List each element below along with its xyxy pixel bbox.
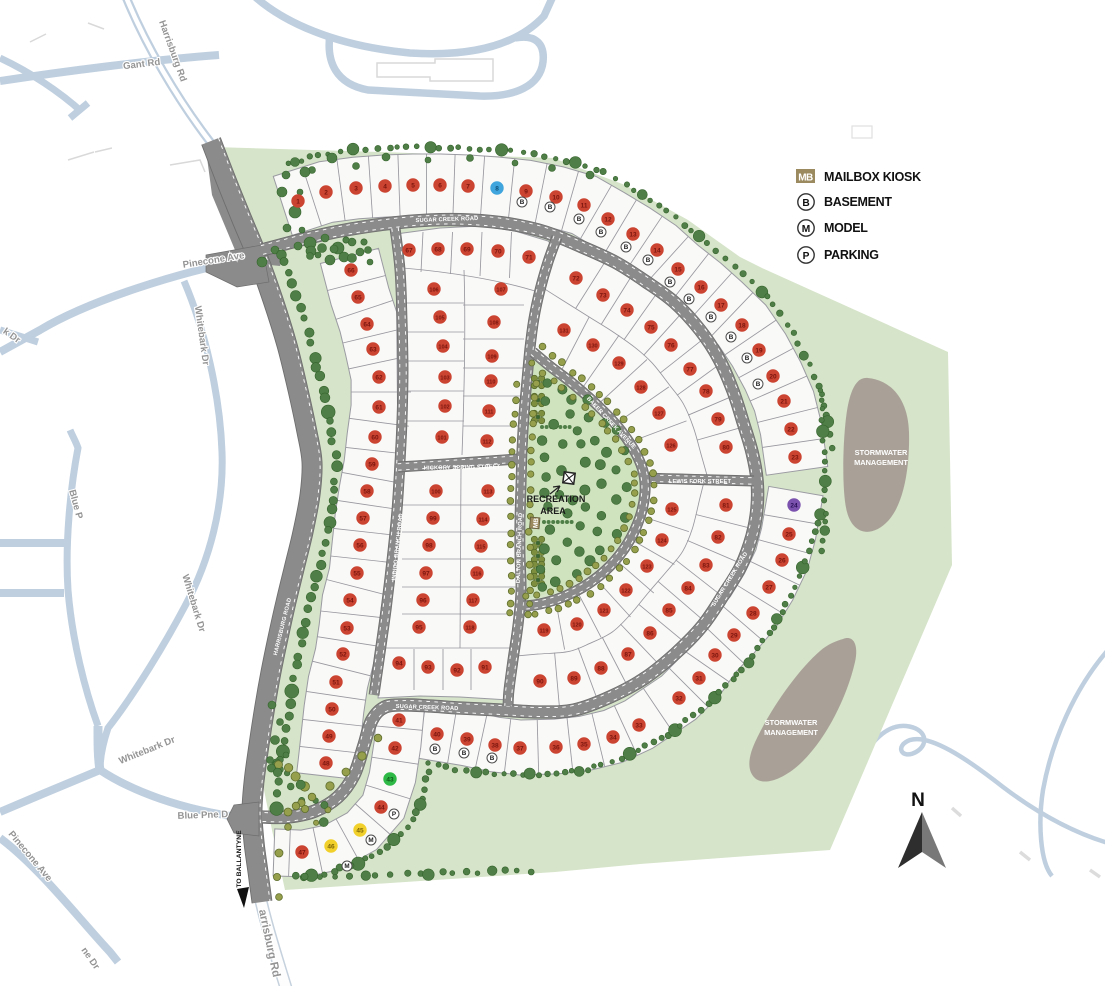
svg-text:36: 36 — [552, 744, 560, 751]
svg-text:83: 83 — [702, 562, 710, 569]
svg-text:B: B — [520, 199, 525, 206]
svg-text:14: 14 — [653, 247, 661, 254]
svg-text:30: 30 — [711, 652, 719, 659]
svg-text:117: 117 — [468, 598, 477, 604]
svg-text:107: 107 — [496, 287, 505, 293]
svg-text:96: 96 — [419, 597, 427, 604]
svg-text:23: 23 — [791, 454, 799, 461]
svg-text:26: 26 — [778, 557, 786, 564]
svg-text:92: 92 — [453, 667, 461, 674]
svg-text:47: 47 — [298, 849, 306, 856]
svg-text:51: 51 — [332, 679, 340, 686]
svg-text:72: 72 — [572, 275, 580, 282]
svg-text:27: 27 — [765, 584, 773, 591]
svg-text:2: 2 — [324, 189, 328, 196]
svg-text:P: P — [803, 251, 810, 262]
svg-text:55: 55 — [353, 570, 361, 577]
svg-text:31: 31 — [695, 675, 703, 682]
svg-text:74: 74 — [623, 307, 631, 314]
svg-text:LEWIS FORK STREET: LEWIS FORK STREET — [669, 479, 732, 485]
svg-text:130: 130 — [588, 343, 597, 349]
svg-text:101: 101 — [437, 435, 446, 441]
svg-text:81: 81 — [722, 502, 730, 509]
svg-text:19: 19 — [755, 347, 763, 354]
svg-text:121: 121 — [599, 608, 608, 614]
svg-text:B: B — [490, 755, 495, 762]
svg-text:120: 120 — [572, 622, 581, 628]
svg-text:17: 17 — [717, 302, 725, 309]
svg-text:53: 53 — [343, 625, 351, 632]
svg-text:22: 22 — [787, 426, 795, 433]
svg-text:125: 125 — [667, 507, 676, 513]
svg-text:68: 68 — [434, 246, 442, 253]
svg-text:20: 20 — [769, 373, 777, 380]
svg-text:28: 28 — [749, 610, 757, 617]
svg-text:RECREATION: RECREATION — [527, 494, 586, 504]
svg-text:80: 80 — [722, 444, 730, 451]
svg-text:B: B — [802, 198, 809, 209]
svg-text:64: 64 — [363, 321, 371, 328]
svg-text:45: 45 — [356, 827, 364, 834]
svg-text:41: 41 — [395, 717, 403, 724]
svg-text:65: 65 — [354, 294, 362, 301]
svg-text:59: 59 — [368, 461, 376, 468]
svg-text:66: 66 — [347, 267, 355, 274]
svg-text:78: 78 — [702, 388, 710, 395]
svg-text:75: 75 — [647, 324, 655, 331]
svg-text:128: 128 — [636, 385, 645, 391]
svg-text:114: 114 — [478, 517, 488, 523]
svg-text:54: 54 — [346, 597, 354, 604]
svg-text:MB: MB — [798, 173, 813, 184]
svg-text:104: 104 — [438, 344, 448, 350]
svg-text:87: 87 — [624, 651, 632, 658]
svg-text:88: 88 — [597, 665, 605, 672]
svg-text:52: 52 — [339, 651, 347, 658]
svg-text:MODEL: MODEL — [824, 221, 868, 235]
svg-text:MAILBOX KIOSK: MAILBOX KIOSK — [824, 170, 921, 184]
svg-text:85: 85 — [665, 607, 673, 614]
svg-text:24: 24 — [790, 502, 798, 509]
svg-text:49: 49 — [325, 733, 333, 740]
svg-text:21: 21 — [780, 398, 788, 405]
svg-text:M: M — [802, 224, 811, 235]
svg-text:110: 110 — [486, 379, 495, 385]
svg-text:38: 38 — [491, 742, 499, 749]
svg-text:5: 5 — [411, 182, 415, 189]
svg-text:9: 9 — [524, 188, 528, 195]
svg-text:STORMWATER: STORMWATER — [765, 718, 818, 727]
svg-text:61: 61 — [375, 404, 383, 411]
svg-text:15: 15 — [674, 266, 682, 273]
svg-text:100: 100 — [431, 489, 440, 495]
svg-text:18: 18 — [738, 322, 746, 329]
svg-text:BASEMENT: BASEMENT — [824, 195, 892, 209]
svg-text:127: 127 — [654, 411, 663, 417]
svg-text:40: 40 — [433, 731, 441, 738]
svg-text:PARKING: PARKING — [824, 248, 879, 262]
svg-text:16: 16 — [697, 284, 705, 291]
svg-text:B: B — [709, 314, 714, 321]
svg-text:P: P — [392, 811, 396, 818]
svg-text:M: M — [344, 863, 349, 870]
svg-text:B: B — [548, 204, 553, 211]
svg-text:113: 113 — [483, 489, 492, 495]
svg-text:4: 4 — [383, 183, 387, 190]
svg-text:76: 76 — [667, 342, 675, 349]
svg-text:35: 35 — [580, 741, 588, 748]
svg-text:91: 91 — [481, 664, 489, 671]
svg-text:46: 46 — [327, 843, 335, 850]
svg-text:109: 109 — [487, 354, 496, 360]
svg-text:67: 67 — [405, 247, 413, 254]
svg-text:115: 115 — [476, 544, 485, 550]
svg-text:44: 44 — [377, 804, 385, 811]
svg-text:57: 57 — [359, 515, 367, 522]
svg-text:13: 13 — [629, 231, 637, 238]
svg-text:1: 1 — [296, 198, 300, 205]
svg-text:32: 32 — [675, 695, 683, 702]
svg-text:29: 29 — [730, 632, 738, 639]
svg-text:63: 63 — [369, 346, 377, 353]
svg-text:42: 42 — [391, 745, 399, 752]
svg-text:7: 7 — [466, 183, 470, 190]
svg-text:34: 34 — [609, 734, 617, 741]
svg-text:B: B — [729, 334, 734, 341]
svg-text:37: 37 — [516, 745, 524, 752]
svg-text:TO BALLANTYNE: TO BALLANTYNE — [236, 830, 243, 888]
svg-text:79: 79 — [714, 416, 722, 423]
svg-text:STORMWATER: STORMWATER — [855, 448, 908, 457]
svg-text:69: 69 — [463, 246, 471, 253]
svg-text:90: 90 — [536, 678, 544, 685]
svg-text:12: 12 — [604, 216, 612, 223]
svg-text:102: 102 — [440, 404, 449, 410]
svg-text:126: 126 — [666, 443, 675, 449]
svg-text:B: B — [646, 257, 651, 264]
svg-text:B: B — [745, 355, 750, 362]
svg-text:73: 73 — [599, 292, 607, 299]
svg-text:118: 118 — [465, 625, 474, 631]
svg-text:103: 103 — [440, 375, 449, 381]
svg-text:10: 10 — [552, 194, 560, 201]
svg-text:95: 95 — [415, 624, 423, 631]
svg-text:98: 98 — [425, 542, 433, 549]
svg-text:119: 119 — [539, 628, 548, 634]
svg-text:122: 122 — [621, 588, 630, 594]
svg-text:MANAGEMENT: MANAGEMENT — [764, 728, 818, 737]
svg-text:Blue Pne D: Blue Pne D — [177, 809, 228, 822]
svg-text:123: 123 — [642, 564, 651, 570]
svg-text:56: 56 — [356, 542, 364, 549]
svg-text:86: 86 — [646, 630, 654, 637]
svg-text:8: 8 — [495, 185, 499, 192]
svg-text:MANAGEMENT: MANAGEMENT — [854, 458, 908, 467]
svg-text:43: 43 — [386, 776, 394, 783]
svg-text:97: 97 — [422, 570, 430, 577]
svg-text:112: 112 — [482, 439, 491, 445]
svg-text:25: 25 — [785, 531, 793, 538]
svg-text:MB: MB — [532, 517, 540, 528]
svg-text:116: 116 — [472, 571, 481, 577]
svg-text:33: 33 — [635, 722, 643, 729]
svg-text:111: 111 — [485, 409, 494, 415]
svg-text:B: B — [599, 229, 604, 236]
svg-text:48: 48 — [322, 760, 330, 767]
svg-text:82: 82 — [714, 534, 722, 541]
svg-text:77: 77 — [686, 366, 694, 373]
svg-text:B: B — [433, 746, 438, 753]
svg-text:71: 71 — [525, 254, 533, 261]
svg-text:B: B — [756, 381, 761, 388]
svg-text:62: 62 — [375, 374, 383, 381]
svg-text:B: B — [668, 279, 673, 286]
svg-text:70: 70 — [494, 248, 502, 255]
svg-text:124: 124 — [657, 538, 667, 544]
svg-text:B: B — [624, 244, 629, 251]
svg-text:AREA: AREA — [540, 506, 566, 516]
svg-text:58: 58 — [363, 488, 371, 495]
svg-text:129: 129 — [614, 361, 623, 367]
svg-text:B: B — [462, 750, 467, 757]
svg-text:6: 6 — [438, 182, 442, 189]
svg-text:3: 3 — [354, 185, 358, 192]
svg-text:93: 93 — [424, 664, 432, 671]
svg-text:11: 11 — [581, 202, 588, 209]
svg-text:39: 39 — [463, 736, 471, 743]
svg-text:60: 60 — [371, 434, 379, 441]
svg-text:131: 131 — [559, 328, 568, 334]
svg-text:108: 108 — [489, 320, 498, 326]
svg-text:N: N — [911, 790, 925, 811]
svg-text:106: 106 — [429, 287, 438, 293]
svg-text:105: 105 — [435, 315, 444, 321]
svg-text:99: 99 — [429, 515, 437, 522]
svg-text:B: B — [577, 216, 582, 223]
svg-text:M: M — [368, 837, 373, 844]
svg-text:50: 50 — [328, 706, 336, 713]
svg-text:94: 94 — [395, 660, 403, 667]
svg-text:B: B — [687, 296, 692, 303]
svg-text:89: 89 — [570, 675, 578, 682]
svg-text:84: 84 — [684, 585, 692, 592]
